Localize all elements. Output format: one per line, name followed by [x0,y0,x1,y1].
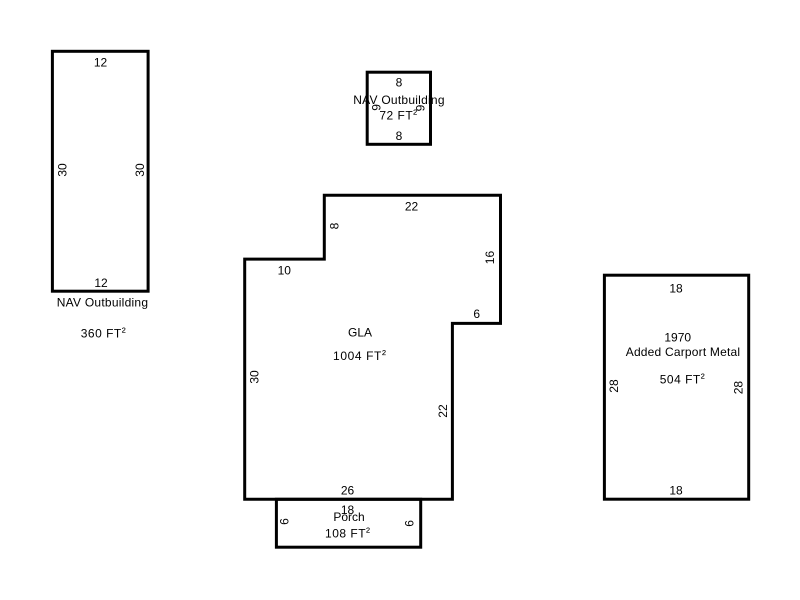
svg-text:504 FT²: 504 FT² [660,371,706,387]
svg-text:1970: 1970 [664,330,691,344]
svg-text:26: 26 [341,484,355,498]
svg-text:GLA: GLA [348,326,372,340]
svg-text:10: 10 [278,264,292,278]
svg-text:22: 22 [436,404,450,418]
svg-text:NAV Outbuilding: NAV Outbuilding [57,296,149,310]
svg-text:30: 30 [55,163,69,177]
svg-text:28: 28 [731,381,745,395]
svg-text:28: 28 [607,379,621,393]
svg-text:1004 FT²: 1004 FT² [333,348,387,364]
svg-text:30: 30 [133,163,147,177]
svg-text:8: 8 [327,222,341,229]
svg-text:18: 18 [669,281,683,295]
svg-text:8: 8 [396,129,403,143]
svg-text:360 FT²: 360 FT² [81,325,127,341]
svg-text:22: 22 [405,200,419,214]
svg-text:72 FT²: 72 FT² [379,107,417,123]
svg-text:12: 12 [94,276,108,290]
svg-text:Porch: Porch [333,510,364,524]
svg-text:16: 16 [483,251,497,265]
svg-text:30: 30 [247,370,261,384]
svg-text:6: 6 [473,307,480,321]
svg-text:Added Carport Metal: Added Carport Metal [626,345,741,359]
svg-text:NAV Outbuilding: NAV Outbuilding [353,93,445,107]
svg-text:6: 6 [403,520,417,527]
svg-text:18: 18 [669,484,683,498]
svg-text:6: 6 [277,518,291,525]
svg-text:12: 12 [94,55,108,69]
svg-text:108 FT²: 108 FT² [325,525,371,541]
svg-text:8: 8 [396,75,403,89]
